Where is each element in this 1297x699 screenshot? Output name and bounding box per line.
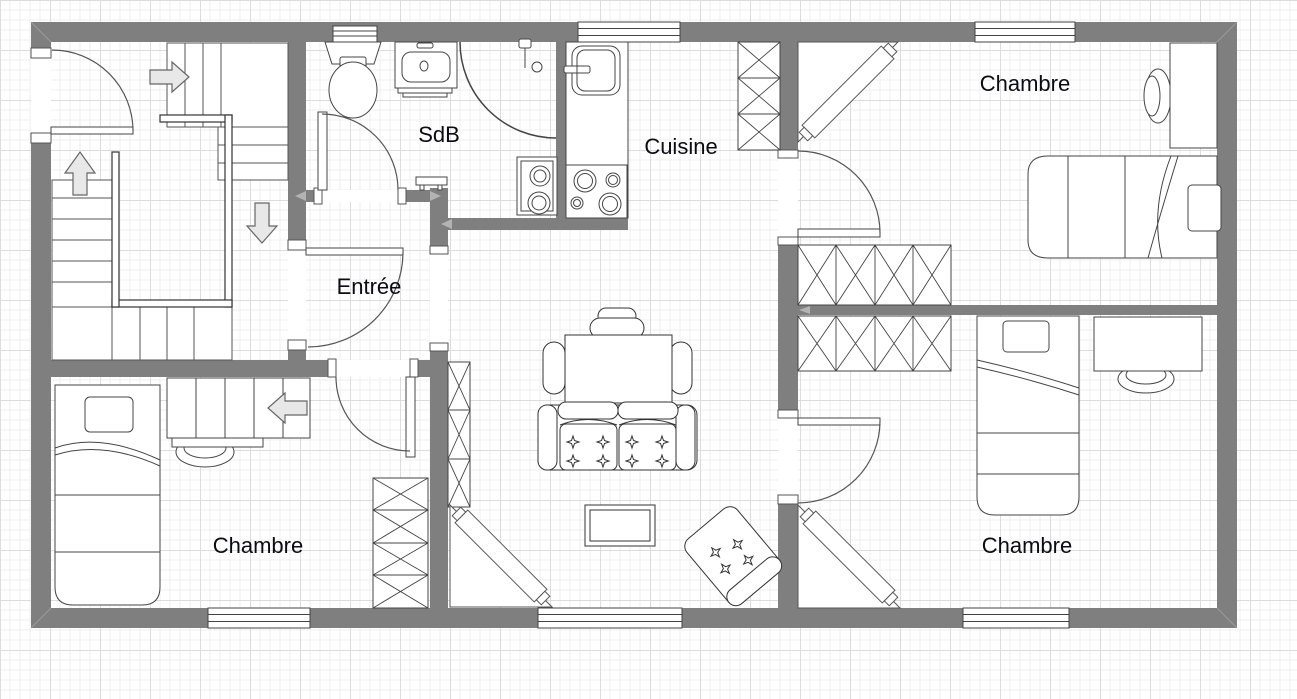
- sofa: [538, 402, 697, 470]
- room-label-cuisine: Cuisine: [644, 134, 717, 159]
- room-label-sdb: SdB: [418, 122, 460, 147]
- stove: [566, 165, 627, 218]
- desk-se: [1094, 317, 1202, 371]
- room-label-entree: Entrée: [337, 274, 402, 299]
- window-bedroom-sw: [208, 608, 310, 628]
- stair-landing: [52, 307, 112, 360]
- dining-chair-right: [670, 342, 692, 394]
- wall-living-bedrooms: [778, 42, 798, 608]
- sofa-seat: [619, 424, 676, 470]
- washer-dryer: [517, 157, 557, 215]
- window-kitchen: [578, 22, 680, 42]
- bathroom-sink: [395, 42, 457, 97]
- window-living: [538, 608, 682, 628]
- wall-kitchen-south: [440, 218, 628, 230]
- dining-chair-left: [543, 342, 565, 394]
- wall-bedrooms-divider: [798, 305, 1217, 315]
- desk-chair-ne-inner: [1144, 76, 1160, 116]
- wall-exterior-right: [1217, 42, 1237, 628]
- sofa-arm-left: [538, 405, 557, 470]
- dining-table: [565, 335, 672, 403]
- cabinet-living: [448, 362, 470, 507]
- window-bedroom-se: [963, 608, 1069, 628]
- floor-plan-page: SdB Cuisine Entrée Chambre Chambre Chamb…: [0, 0, 1297, 699]
- wardrobe-bedroom-ne: [798, 245, 951, 305]
- stair-flight-left: [52, 180, 112, 307]
- sofa-arm-right: [676, 405, 695, 470]
- room-label-chambre-sw: Chambre: [213, 533, 303, 558]
- wardrobe-bedroom-se: [798, 316, 951, 371]
- sofa-back-cushion: [558, 402, 618, 419]
- desk-ne: [1170, 43, 1217, 148]
- window-bedroom-ne: [975, 22, 1075, 42]
- bed-sw: [55, 385, 160, 605]
- stair-flight-bottom: [112, 307, 232, 360]
- kitchen-fixtures: [564, 42, 628, 218]
- bed-ne: [1028, 156, 1221, 258]
- wardrobe-bedroom-sw: [373, 478, 428, 608]
- sofa-seat: [560, 424, 617, 470]
- floor-plan-canvas: SdB Cuisine Entrée Chambre Chambre Chamb…: [0, 0, 1297, 699]
- wardrobe-kitchen-wall: [738, 42, 780, 150]
- kitchen-sink: [564, 46, 620, 95]
- bed-se: [977, 316, 1079, 515]
- sofa-back-cushion: [618, 402, 678, 419]
- desk-shelf-sw: [172, 438, 263, 447]
- room-label-chambre-ne: Chambre: [980, 71, 1070, 96]
- tv-stand: [585, 505, 655, 546]
- room-label-chambre-se: Chambre: [982, 533, 1072, 558]
